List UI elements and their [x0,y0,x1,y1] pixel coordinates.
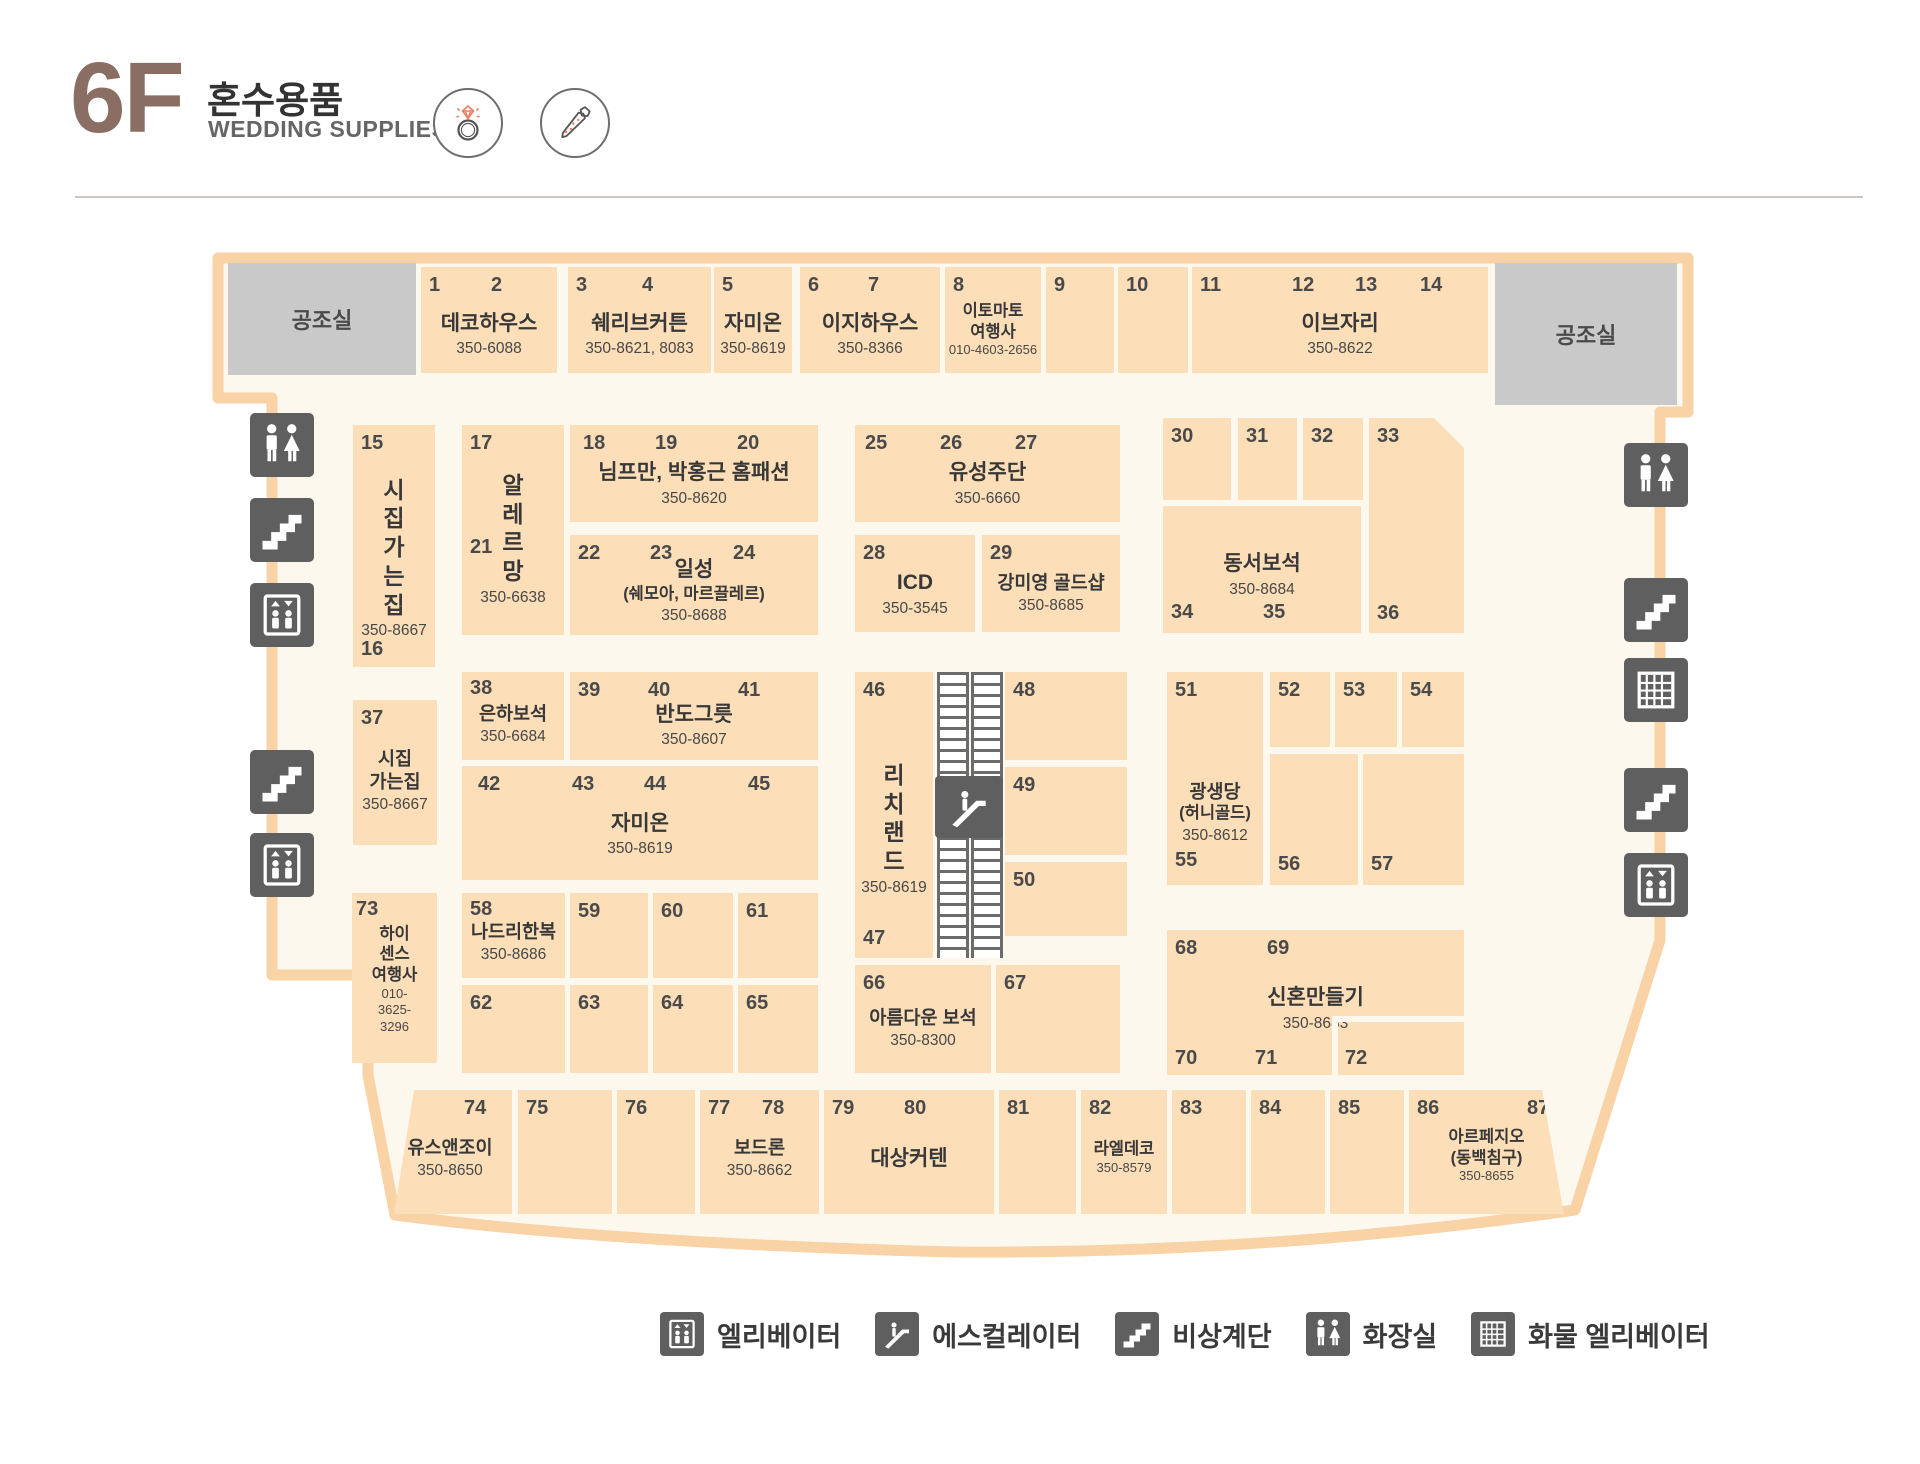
stall-6-7: 67이지하우스350-8366 [800,267,940,373]
stall-79-80: 7980대상커텐 [824,1090,994,1214]
stall-number: 67 [1004,973,1026,993]
stall-phone: 350-3545 [882,597,948,620]
stall-name: 쉐리브커튼 [591,310,688,337]
stall-66: 66아름다운 보석350-8300 [855,965,991,1073]
stall-phone: 350-6660 [955,487,1021,510]
stall-hvac-right: 공조실 [1495,263,1677,405]
stall-name: 공조실 [292,303,353,335]
stall-51-55: 5155광생당(허니골드)350-8612 [1167,672,1263,885]
stall-73: 73하이센스여행사010-3625-3296 [352,893,437,1063]
legend-item: 에스컬레이터 [875,1312,1081,1356]
stall-63: 63 [570,985,648,1073]
elevator-icon [256,589,308,641]
stall-15-16: 1516시 집 가 는 집350-8667 [353,425,435,667]
stairs-icon [1630,584,1682,636]
stall-name: 센스 [379,944,409,965]
stall-number: 54 [1410,680,1432,700]
stall-phone: 350-8300 [890,1029,956,1052]
restroom-icon [256,419,308,471]
stall-11-14: 11121314이브자리350-8622 [1192,267,1488,373]
stall-38: 38은하보석350-6684 [462,672,564,760]
stall-50: 50 [1005,862,1127,936]
stall-name: 공조실 [1556,318,1617,350]
legend: 엘리베이터에스컬레이터비상계단화장실화물 엘리베이터 [660,1312,1710,1356]
freight-elevator-icon [1471,1312,1515,1356]
stall-number: 50 [1013,870,1035,890]
stairs-marker [1624,578,1688,642]
stall-29: 29강미영 골드샵350-8685 [982,535,1120,632]
legend-item: 화물 엘리베이터 [1471,1312,1709,1356]
stall-phone: 350-8685 [1018,594,1084,617]
stall-phone: 350-8612 [1182,824,1248,847]
stall-name: ICD [897,569,933,596]
stall-name: 여행사 [372,965,418,986]
elevator-marker [250,833,314,897]
restroom-icon [1630,449,1682,501]
stall-number: 61 [746,901,768,921]
stall-name: 라엘데코 [1094,1139,1155,1160]
stall-62: 62 [462,985,565,1073]
stall-number: 65 [746,993,768,1013]
stall-25-27: 252627유성주단350-6660 [855,425,1120,522]
restroom-icon [1306,1312,1350,1356]
elevator-icon [1630,859,1682,911]
stall-52: 52 [1270,672,1330,747]
stall-phone: 3625- [378,1002,411,1019]
stall-65: 65 [738,985,818,1073]
stall-number: 53 [1343,680,1365,700]
stall-phone: 350-8619 [720,337,786,360]
stall-phone: 350-8650 [417,1159,483,1182]
stall-phone: 350-8667 [361,619,427,642]
legend-label: 화물 엘리베이터 [1528,1315,1709,1354]
stall-32: 32 [1303,418,1363,500]
escalator-icon [875,1312,919,1356]
stall-number: 30 [1171,426,1193,446]
stall-37: 37시집가는집350-8667 [353,700,437,845]
stall-name: 강미영 골드샵 [997,571,1104,594]
stall-name: 일성 [675,556,714,583]
stall-1-2: 12데코하우스350-6088 [421,267,557,373]
stall-number: 83 [1180,1098,1202,1118]
stall-name: 나드리한복 [471,920,556,943]
legend-label: 화장실 [1363,1315,1438,1354]
stall-name: 신혼만들기 [1267,984,1364,1011]
stall-name: 유스앤조이 [407,1136,492,1159]
stall-17-21: 1721알 레 르 망350-6638 [462,425,564,635]
elevator-marker [250,583,314,647]
cell-divider [1332,1016,1338,1075]
stairs-icon [256,504,308,556]
stall-number: 9 [1054,275,1065,295]
stall-phone: 010-4603-2656 [949,342,1037,359]
stall-name: 여행사 [970,322,1016,343]
stall-name: 은하보석 [479,702,547,725]
stall-name: 알 레 르 망 [502,471,523,586]
stall-phone: 350-6088 [456,337,522,360]
stall-name: 광생당 [1189,780,1240,803]
stall-number: 36 [1377,603,1399,623]
stall-61: 61 [738,893,818,978]
stall-phone: 3296 [380,1019,409,1036]
legend-label: 엘리베이터 [717,1315,841,1354]
stall-34-35: 3435동서보석350-8684 [1163,506,1361,633]
stall-48: 48 [1005,672,1127,760]
stall-name: 리 치 랜 드 [883,761,904,876]
stall-phone: 350-8622 [1307,337,1373,360]
stall-hvac-left: 공조실 [228,263,416,375]
stall-name: 자미온 [611,810,669,837]
stall-name: 아름다운 보석 [869,1006,976,1029]
restroom-marker [1624,443,1688,507]
legend-item: 엘리베이터 [660,1312,841,1356]
stall-54: 54 [1402,672,1464,747]
stall-28: 28ICD350-3545 [855,535,975,632]
stall-83: 83 [1172,1090,1246,1214]
freight-elevator-icon [1630,664,1682,716]
stall-53: 53 [1335,672,1397,747]
stall-name: 반도그릇 [655,701,732,728]
stall-number: 52 [1278,680,1300,700]
stairs-icon [1630,774,1682,826]
stall-59: 59 [570,893,648,978]
stall-number: 76 [625,1098,647,1118]
stall-name: 아르페지오 [1449,1127,1525,1148]
legend-item: 화장실 [1306,1312,1438,1356]
stall-phone: 350-8366 [837,337,903,360]
stairs-icon [1115,1312,1159,1356]
escalator-icon [944,782,994,832]
stall-57: 57 [1363,754,1464,885]
stall-phone: 350-8662 [727,1159,793,1182]
stall-phone: 350-6638 [480,586,546,609]
stall-3-4: 34쉐리브커튼350-8621, 8083 [568,267,711,373]
stairs-marker [250,498,314,562]
stall-42-45: 42434445자미온350-8619 [462,766,818,880]
stall-phone: 010- [381,986,407,1003]
stall-18-20: 181920님프만, 박홍근 홈패션350-8620 [570,425,818,522]
stall-name: 대상커텐 [870,1145,947,1172]
stall-number: 85 [1338,1098,1360,1118]
stall-81: 81 [999,1090,1076,1214]
stall-name: 시 집 가 는 집 [383,476,404,620]
stall-number: 84 [1259,1098,1281,1118]
stall-number: 81 [1007,1098,1029,1118]
stall-number: 57 [1371,854,1393,874]
stall-phone: 350-6684 [480,725,546,748]
stall-64: 64 [653,985,733,1073]
stall-31: 31 [1238,418,1297,500]
stall-5: 5자미온350-8619 [714,267,792,373]
stall-phone: 350-8686 [481,943,547,966]
stall-number: 59 [578,901,600,921]
stall-name: 가는집 [369,770,420,793]
stall-number: 60 [661,901,683,921]
stall-phone: 350-8607 [661,728,727,751]
stall-name: 시집 [378,747,412,770]
stall-76: 76 [617,1090,695,1214]
stall-36: 36 [1369,506,1464,633]
stall-name: (동백침구) [1451,1148,1523,1169]
stall-84: 84 [1251,1090,1325,1214]
stall-number: 75 [526,1098,548,1118]
stall-name: 이지하우스 [822,310,919,337]
stall-58: 58나드리한복350-8686 [462,893,565,978]
stall-number: 64 [661,993,683,1013]
stall-49: 49 [1005,767,1127,855]
stairs-icon [256,756,308,808]
escalator-marker [935,776,1003,838]
stall-name: 자미온 [724,310,782,337]
stall-67: 67 [996,965,1120,1073]
stall-name: 님프만, 박홍근 홈패션 [598,459,789,486]
stall-number: 56 [1278,854,1300,874]
stall-name: 보드론 [734,1136,785,1159]
floor-directory-page: 6F 혼수용품 WEDDING SUPPLIES 공조실공조실12데코하우스35… [0,0,1920,1464]
stall-8: 8이토마토여행사010-4603-2656 [945,267,1041,373]
stall-phone: 350-8619 [861,876,927,899]
stall-number: 32 [1311,426,1333,446]
restroom-marker [250,413,314,477]
stall-22-24: 222324일성(쉐모아, 마르끌레르)350-8688 [570,535,818,635]
stall-name: 이브자리 [1301,310,1378,337]
stall-number: 49 [1013,775,1035,795]
stairs-marker [250,750,314,814]
stall-number: 62 [470,993,492,1013]
stall-phone: 350-8688 [661,604,727,627]
stall-phone: 350-8621, 8083 [585,337,694,360]
legend-label: 비상계단 [1172,1315,1271,1354]
stall-phone: 350-8579 [1097,1160,1152,1177]
freight-elevator-marker [1624,658,1688,722]
stall-10: 10 [1118,267,1188,373]
stall-name: (허니골드) [1179,803,1251,824]
stall-56: 56 [1270,754,1358,885]
stall-30: 30 [1163,418,1231,500]
stall-name: 데코하우스 [441,310,538,337]
stall-number: 10 [1126,275,1148,295]
stall-phone: 350-8684 [1229,578,1295,601]
cell-divider [1332,1016,1464,1022]
elevator-marker [1624,853,1688,917]
stall-39-41: 394041반도그릇350-8607 [570,672,818,760]
legend-item: 비상계단 [1115,1312,1271,1356]
stall-85: 85 [1330,1090,1404,1214]
stall-75: 75 [518,1090,612,1214]
stall-name: 동서보석 [1223,550,1300,577]
elevator-icon [660,1312,704,1356]
stall-68-72: 6869707172신혼만들기350-8683 [1167,930,1464,1075]
stall-phone: 350-8619 [607,837,673,860]
legend-label: 에스컬레이터 [932,1315,1081,1354]
stairs-marker [1624,768,1688,832]
stall-name: 하이 [379,924,409,945]
stall-name: 이토마토 [963,301,1024,322]
stall-9: 9 [1046,267,1114,373]
stall-phone: 350-8620 [661,487,727,510]
elevator-icon [256,839,308,891]
stall-phone: 350-8683 [1283,1012,1349,1035]
stall-82: 82라엘데코350-8579 [1081,1090,1167,1214]
stall-number: 48 [1013,680,1035,700]
stall-46-47: 4647리 치 랜 드350-8619 [855,672,933,958]
stall-77-78: 7778보드론350-8662 [700,1090,819,1214]
stall-60: 60 [653,893,733,978]
stall-86-87: 8687아르페지오(동백침구)350-8655 [1409,1090,1564,1214]
stall-phone: 350-8667 [362,793,428,816]
stall-name: (쉐모아, 마르끌레르) [623,584,765,605]
stall-phone: 350-8655 [1459,1168,1514,1185]
stall-number: 33 [1377,426,1399,446]
stall-number: 63 [578,993,600,1013]
stall-number: 31 [1246,426,1268,446]
stall-name: 유성주단 [949,459,1026,486]
